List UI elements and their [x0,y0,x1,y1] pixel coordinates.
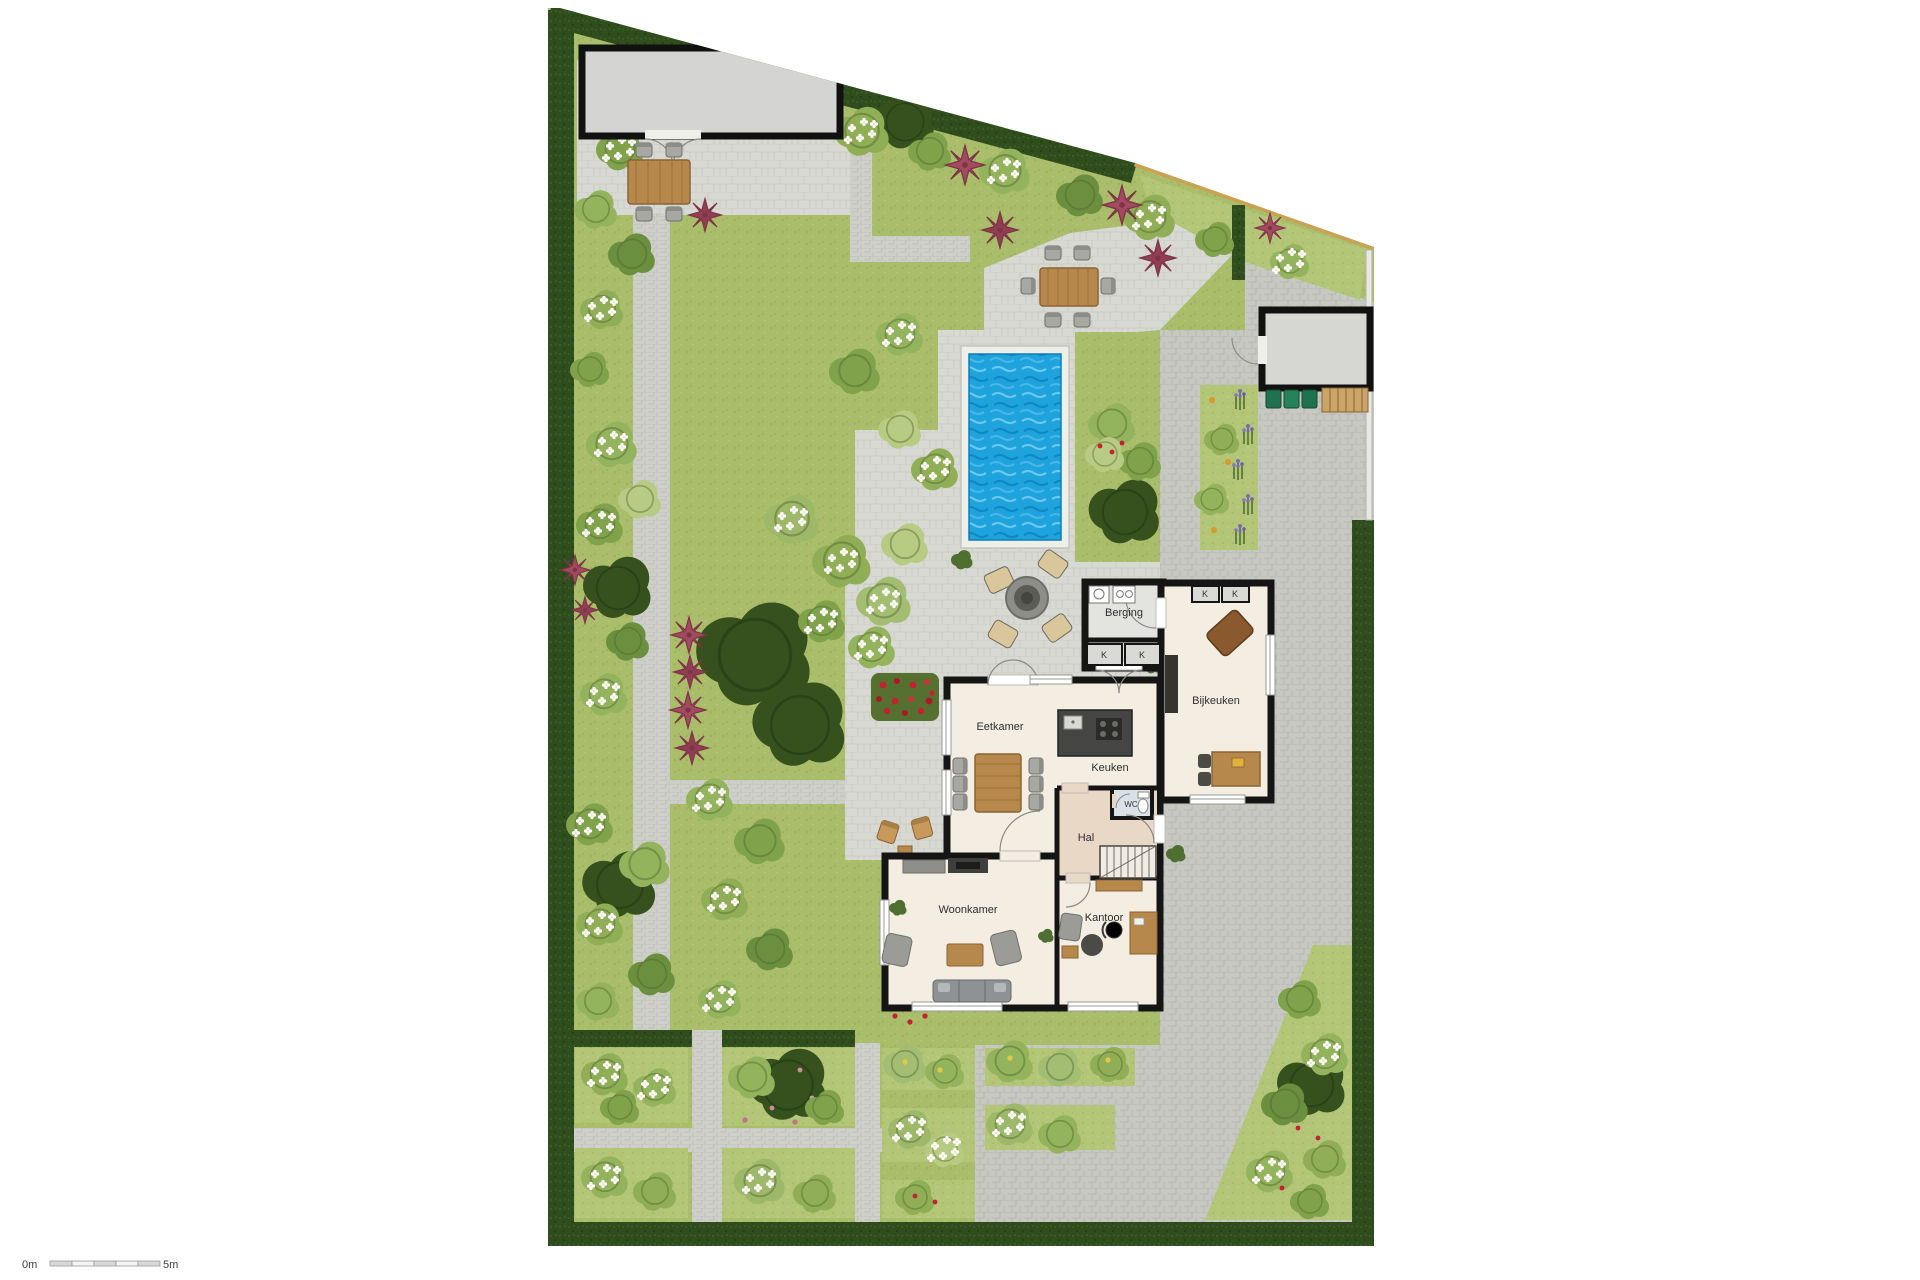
front-door [1154,815,1165,843]
label-bijkeuken: Bijkeuken [1192,695,1240,707]
toilet-icon [1138,799,1148,813]
label-wc: WC [1124,800,1138,809]
round-rug [1081,934,1103,956]
hedge-bottom [548,1222,1375,1246]
label-closet-4: K [1232,589,1238,599]
label-kantoor: Kantoor [1085,912,1124,924]
dining-room-furniture [953,754,1043,812]
site-plan-canvas: Eetkamer Keuken Woonkamer Kantoor Hal WC… [0,0,1920,1280]
stove-icon [1096,718,1122,740]
label-berging: Berging [1105,607,1143,619]
label-closet-2: K [1139,650,1145,660]
bottom-path-vertical-1 [692,1030,722,1222]
hedge-wall-patio [1232,205,1245,280]
scale-end-label: 5m [163,1259,178,1271]
coffee-table [947,944,983,966]
label-closet-3: K [1202,589,1208,599]
rose-bed [871,673,939,721]
stool [1198,772,1211,786]
stool [1198,754,1211,768]
office-chair [1106,922,1122,938]
hedge-right [1352,520,1375,1246]
hedge-left [548,10,574,1246]
swimming-pool [961,346,1069,548]
work-table [1212,752,1260,786]
scale-bar: 0m 5m [22,1259,178,1271]
kitchen-island [1058,710,1132,756]
sideboard [1096,880,1142,891]
garden-floor-plan: Eetkamer Keuken Woonkamer Kantoor Hal WC… [0,0,1920,1280]
armchair [881,933,913,968]
garden-path-upper [850,143,872,243]
bed-lavender [1200,385,1258,550]
pool-water [969,354,1061,540]
label-woonkamer: Woonkamer [938,904,997,916]
label-closet-1: K [1101,650,1107,660]
wood-storage [1322,388,1368,412]
garden-path-upper-2 [850,236,970,262]
scale-start-label: 0m [22,1259,37,1271]
reading-chair [1058,913,1082,942]
staircase [1100,846,1156,878]
dining-table [975,754,1021,812]
label-hal: Hal [1078,832,1095,844]
waste-bins [1266,390,1317,408]
label-keuken: Keuken [1091,762,1128,774]
tv-cabinet [903,860,945,873]
tall-cabinet [1165,655,1178,713]
label-eetkamer: Eetkamer [976,721,1023,733]
